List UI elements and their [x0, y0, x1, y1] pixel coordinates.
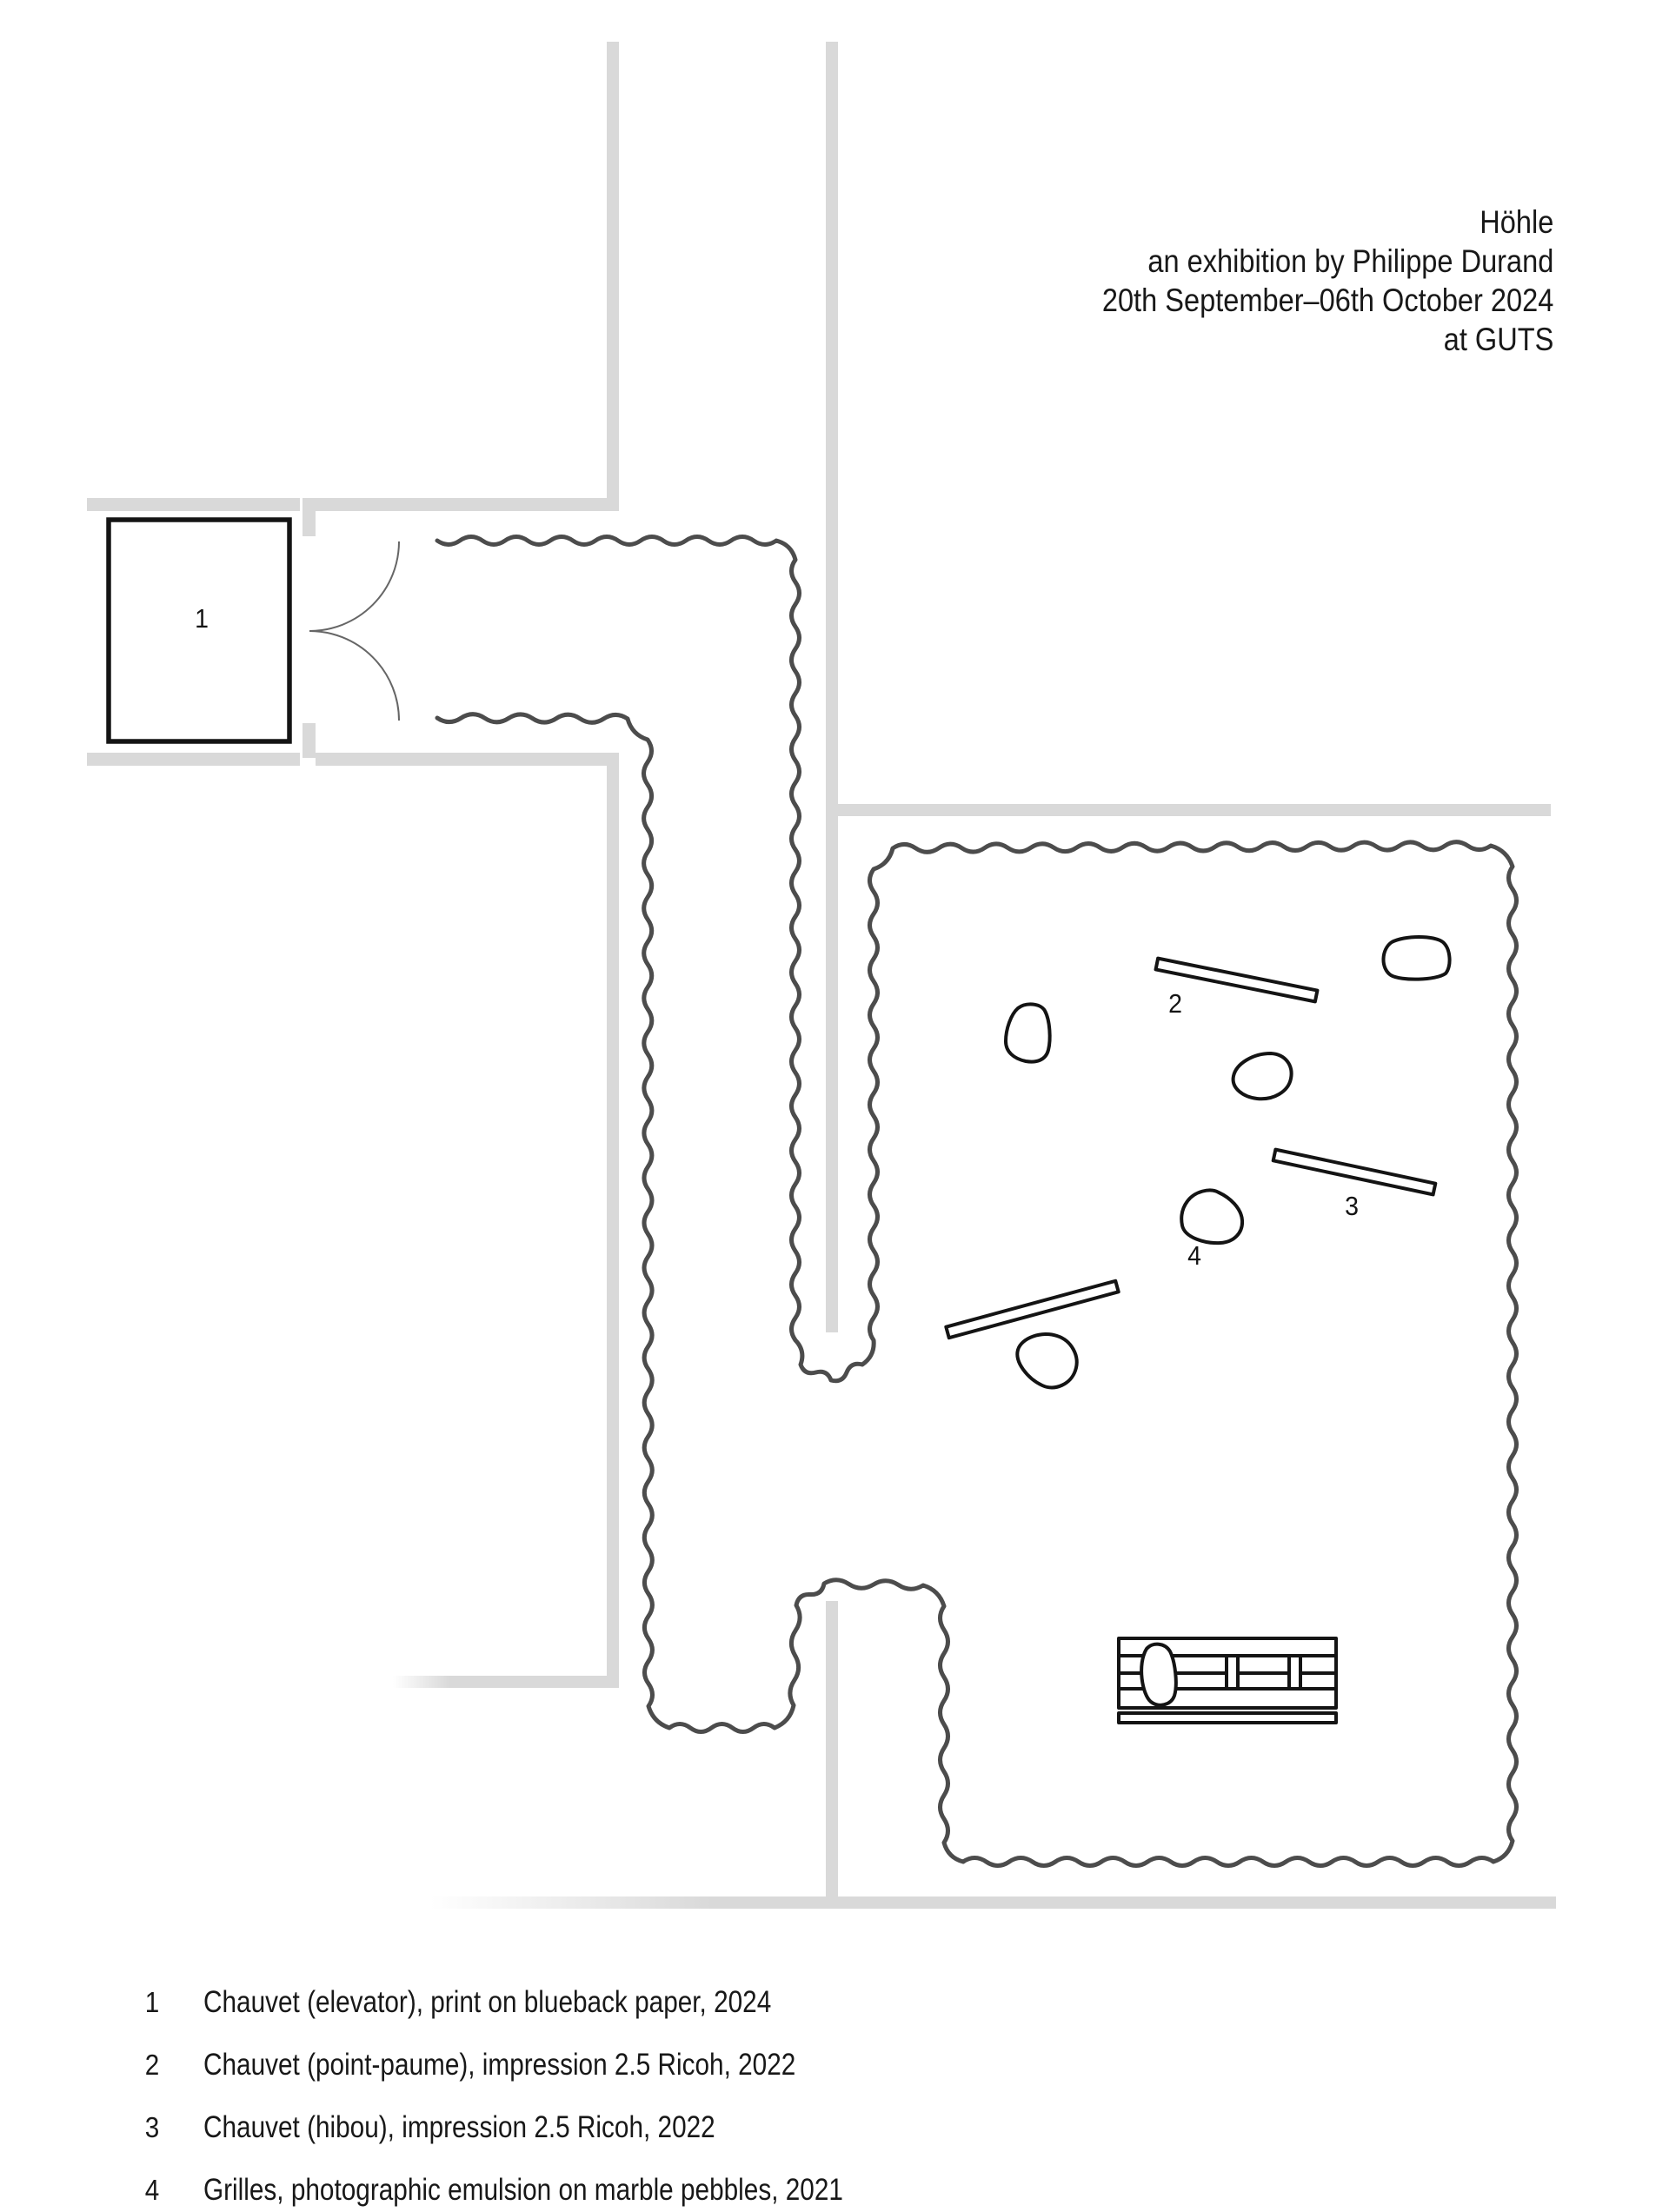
exhibition-title: Höhle [1101, 203, 1553, 242]
legend-row: 4 Grilles, photographic emulsion on marb… [0, 2172, 1669, 2209]
bench-plank [1238, 1656, 1289, 1673]
wall-horizontal-lower-left [87, 753, 300, 766]
legend-row: 3 Chauvet (hibou), impression 2.5 Ricoh,… [0, 2109, 1669, 2146]
stone-pebble [1017, 1334, 1076, 1387]
bench-plank [1300, 1673, 1336, 1689]
exhibition-dates: 20th September–06th October 2024 [1101, 281, 1553, 320]
stone-pebble-on-bench [1141, 1644, 1176, 1705]
legend-number: 4 [139, 2172, 166, 2209]
legend-row: 1 Chauvet (elevator), print on blueback … [0, 1984, 1669, 2021]
door-arc-bottom [309, 631, 399, 721]
legend-number: 3 [139, 2109, 166, 2146]
wall-door-stub-top [303, 498, 316, 536]
exhibition-venue: at GUTS [1101, 320, 1553, 359]
door-arc-top [309, 541, 399, 631]
wall-door-stub-bottom [303, 723, 316, 758]
wall-horizontal-lower-right [316, 753, 619, 766]
stone-pebble [1233, 1053, 1292, 1099]
door-swing-arcs [309, 541, 399, 721]
map-label-3: 3 [1345, 1191, 1359, 1222]
stone-pebble [1181, 1190, 1242, 1243]
legend-number: 1 [139, 1984, 166, 2021]
wall-vertical-center [826, 42, 838, 1332]
wall-horizontal-bottom [430, 1896, 1556, 1909]
artwork-plank-lower [946, 1281, 1118, 1338]
bench-base-strip [1119, 1713, 1336, 1723]
map-label-2: 2 [1168, 988, 1182, 1020]
exhibition-subtitle: an exhibition by Philippe Durand [1101, 242, 1553, 281]
bench-plank [1300, 1656, 1336, 1673]
wall-vertical-left-bottom [607, 766, 619, 1682]
wall-horizontal-faded-bottom-left [393, 1676, 619, 1688]
bench-plank [1238, 1673, 1289, 1689]
map-label-4: 4 [1187, 1240, 1201, 1272]
legend-number: 2 [139, 2047, 166, 2083]
legend-caption: Grilles, photographic emulsion on marble… [203, 2172, 843, 2209]
stones [1006, 937, 1450, 1705]
wall-vertical-left-top [607, 42, 619, 500]
stone-pebble [1383, 937, 1449, 980]
legend-caption: Chauvet (hibou), impression 2.5 Ricoh, 2… [203, 2109, 715, 2146]
artwork-plank-3 [1273, 1150, 1436, 1195]
legend-caption: Chauvet (point-paume), impression 2.5 Ri… [203, 2047, 795, 2083]
wall-horizontal-right [826, 804, 1551, 816]
wall-horizontal-upper-right [316, 498, 619, 511]
stone-pebble [1006, 1004, 1050, 1061]
wall-horizontal-upper-left [87, 498, 300, 511]
map-label-1: 1 [195, 603, 209, 634]
exhibition-floor-plan-page: Höhle an exhibition by Philippe Durand 2… [0, 0, 1669, 2212]
wall-vertical-center-lower [826, 1601, 838, 1896]
exhibition-title-block: Höhle an exhibition by Philippe Durand 2… [1041, 203, 1553, 359]
legend-caption: Chauvet (elevator), print on blueback pa… [203, 1984, 771, 2021]
legend-row: 2 Chauvet (point-paume), impression 2.5 … [0, 2047, 1669, 2083]
